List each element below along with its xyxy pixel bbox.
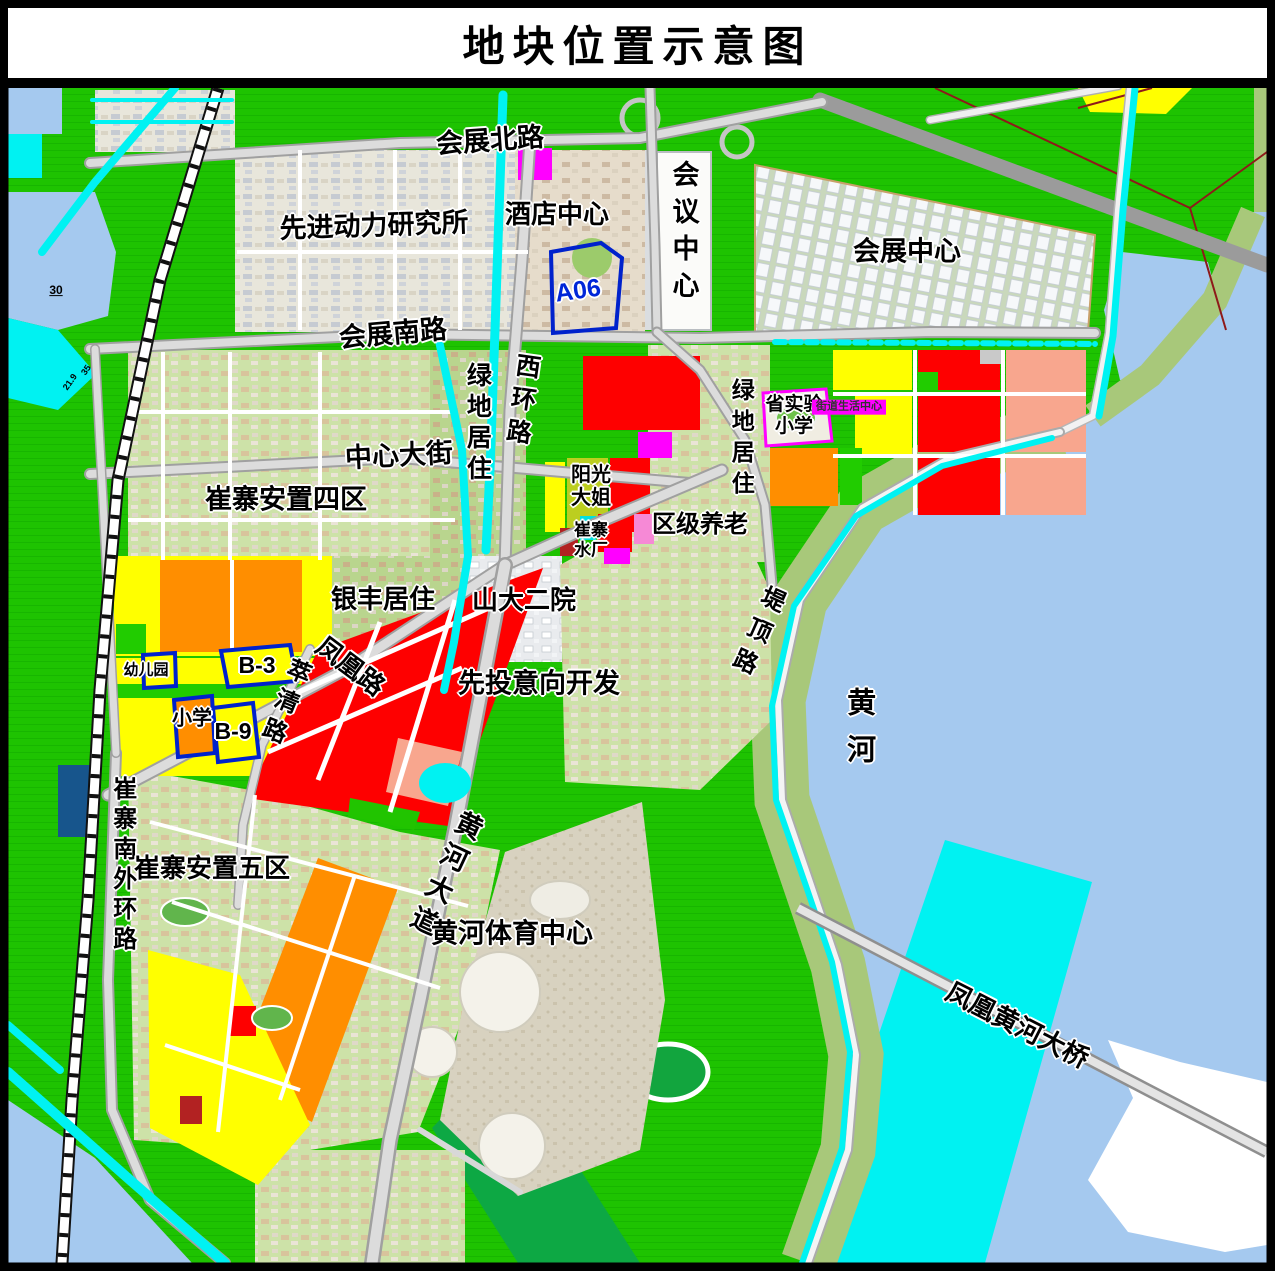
plot-location-map: 地块位置示意图 会展北路先进动力研究所酒店中心会议中心会展中心A06会展南路西环… — [0, 0, 1275, 1271]
plot-b3 — [221, 645, 297, 687]
map-canvas — [0, 0, 1275, 1271]
west-lake — [8, 192, 116, 330]
page-title: 地块位置示意图 — [462, 13, 812, 74]
plot-kindergarten — [143, 653, 176, 688]
plot-b9 — [213, 703, 259, 762]
title-divider — [8, 78, 1267, 88]
plot-primary-school — [174, 696, 215, 757]
stadium — [530, 881, 590, 919]
adv-power-institute-area — [235, 150, 531, 332]
title-bar: 地块位置示意图 — [8, 8, 1267, 78]
conference-center-building — [657, 152, 711, 330]
sports-dome — [460, 952, 540, 1032]
